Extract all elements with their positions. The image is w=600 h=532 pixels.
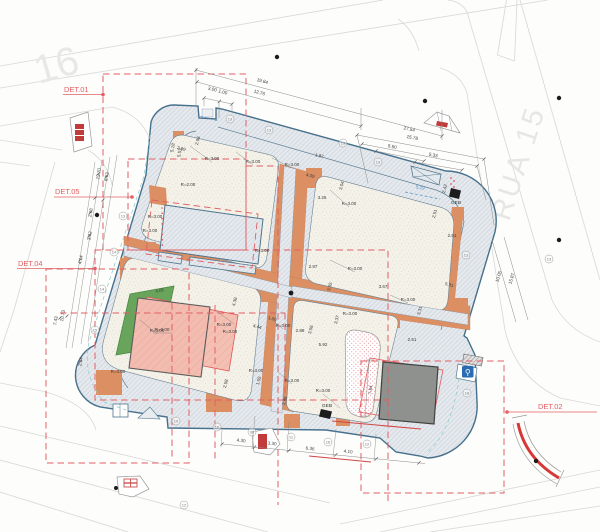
svg-text:13: 13 <box>464 253 469 258</box>
svg-text:R=3.00: R=3.00 <box>285 162 300 167</box>
svg-text:15: 15 <box>93 328 98 333</box>
svg-text:R=2.00: R=2.00 <box>181 182 196 187</box>
svg-text:R=3.00: R=3.00 <box>246 159 261 164</box>
svg-text:GEB: GEB <box>322 403 332 409</box>
svg-text:⚲: ⚲ <box>465 368 471 377</box>
svg-text:R=3.00: R=3.00 <box>223 329 238 334</box>
svg-text:14: 14 <box>112 250 117 255</box>
svg-text:13: 13 <box>121 214 126 219</box>
svg-text:4.30: 4.30 <box>236 438 246 444</box>
svg-text:13: 13 <box>341 141 346 146</box>
svg-text:R=3.00: R=3.00 <box>343 311 358 316</box>
svg-text:12: 12 <box>365 442 370 447</box>
svg-text:R=3.00: R=3.00 <box>111 369 126 374</box>
svg-text:10: 10 <box>215 425 220 430</box>
svg-text:6.36: 6.36 <box>305 446 315 452</box>
svg-text:R=3.00: R=3.00 <box>285 378 300 383</box>
svg-text:R=3.00: R=3.00 <box>401 297 416 302</box>
svg-text:R=3.00: R=3.00 <box>150 328 165 333</box>
svg-text:GEB: GEB <box>451 200 461 206</box>
svg-text:R=3.00: R=3.00 <box>249 368 264 373</box>
svg-text:4.10: 4.10 <box>343 449 353 455</box>
svg-text:12: 12 <box>182 503 187 508</box>
svg-text:2.88: 2.88 <box>296 328 305 333</box>
svg-text:5.92: 5.92 <box>319 342 328 347</box>
svg-text:DET.01: DET.01 <box>64 85 89 94</box>
svg-text:3.30: 3.30 <box>267 441 277 447</box>
svg-text:R=3.00: R=3.00 <box>342 201 357 206</box>
svg-text:3.25: 3.25 <box>318 195 327 200</box>
svg-text:2.51: 2.51 <box>448 233 457 238</box>
svg-text:13: 13 <box>267 128 272 133</box>
svg-text:18: 18 <box>465 391 470 396</box>
svg-text:13: 13 <box>547 257 552 262</box>
svg-text:R=3.00: R=3.00 <box>217 322 232 327</box>
svg-text:DET.04: DET.04 <box>18 259 43 268</box>
svg-text:R=3.00: R=3.00 <box>348 266 363 271</box>
svg-text:R=3.00: R=3.00 <box>148 214 163 219</box>
svg-text:14: 14 <box>100 287 105 292</box>
svg-text:13: 13 <box>228 117 233 122</box>
svg-text:10: 10 <box>174 419 179 424</box>
svg-text:13: 13 <box>376 160 381 165</box>
svg-text:16: 16 <box>326 440 331 445</box>
svg-text:DET.02: DET.02 <box>538 402 563 411</box>
svg-text:R=3.00: R=3.00 <box>316 388 331 393</box>
svg-text:R=3.00: R=3.00 <box>276 323 291 328</box>
svg-text:2.97: 2.97 <box>309 264 318 269</box>
svg-text:R=3.00: R=3.00 <box>255 248 270 253</box>
svg-text:2.51: 2.51 <box>408 337 417 342</box>
svg-text:R=3.00: R=3.00 <box>143 228 158 233</box>
svg-text:DET.05: DET.05 <box>55 187 80 196</box>
svg-text:3.67: 3.67 <box>379 284 388 289</box>
svg-text:09: 09 <box>250 430 255 435</box>
